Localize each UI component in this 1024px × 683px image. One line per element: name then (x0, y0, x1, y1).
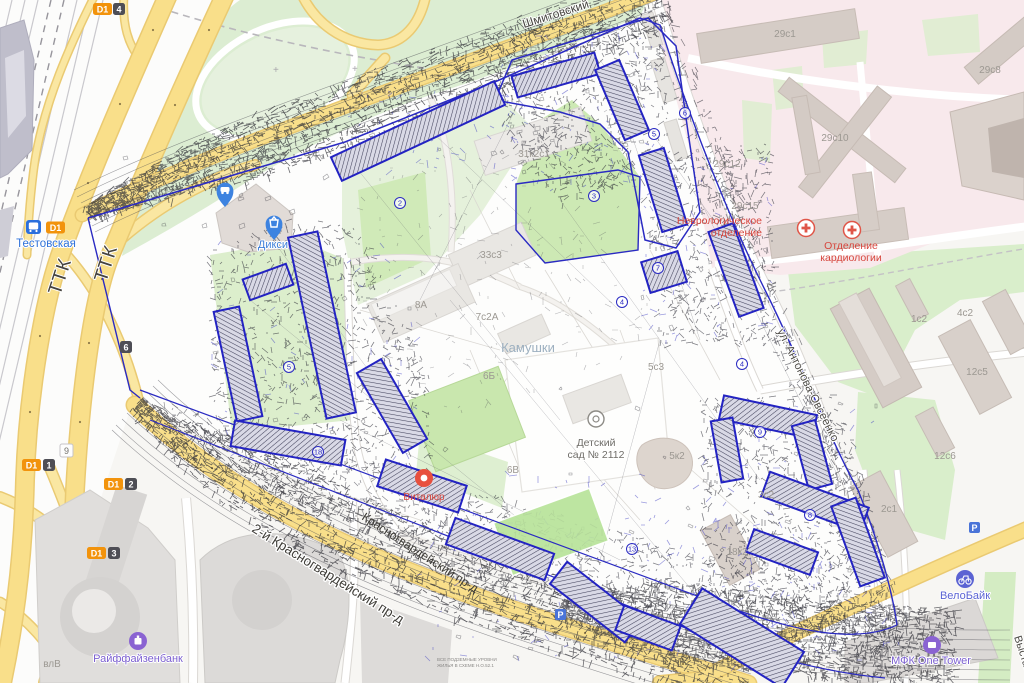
svg-text:4с2: 4с2 (957, 308, 974, 319)
svg-text:12с5: 12с5 (966, 367, 988, 378)
svg-text:4: 4 (116, 5, 121, 15)
svg-text:D1: D1 (50, 223, 62, 233)
svg-text:P: P (557, 610, 563, 620)
svg-text:D1: D1 (91, 549, 103, 559)
svg-text:Камушки: Камушки (501, 340, 555, 355)
svg-text:29с15: 29с15 (731, 201, 759, 212)
svg-text:5: 5 (287, 363, 291, 372)
svg-text:D1: D1 (108, 480, 120, 490)
svg-text:ЖИЛЬЯ В СХЕМЕ Н.О.52.1: ЖИЛЬЯ В СХЕМЕ Н.О.52.1 (437, 663, 494, 668)
svg-text:31к2с1: 31к2с1 (518, 149, 550, 160)
svg-text:2с1: 2с1 (881, 504, 898, 515)
svg-text:9: 9 (64, 446, 69, 456)
svg-text:33с3: 33с3 (480, 250, 502, 261)
svg-text:2: 2 (398, 199, 402, 208)
svg-text:отделение: отделение (711, 227, 762, 239)
svg-text:3с2: 3с2 (758, 490, 775, 501)
svg-text:6: 6 (683, 109, 687, 118)
svg-text:3: 3 (592, 192, 596, 201)
svg-text:7с2А: 7с2А (476, 312, 499, 323)
svg-text:P: P (971, 523, 977, 533)
svg-text:13: 13 (628, 545, 636, 554)
svg-text:Неврологическое: Неврологическое (677, 215, 762, 227)
svg-text:6Б: 6Б (483, 371, 496, 382)
svg-text:18: 18 (314, 448, 322, 457)
svg-text:3: 3 (111, 549, 116, 559)
svg-text:8: 8 (808, 511, 812, 520)
svg-text:D1: D1 (97, 5, 109, 15)
svg-text:9: 9 (758, 428, 762, 437)
svg-text:6В: 6В (507, 465, 520, 476)
svg-text:29с8: 29с8 (979, 65, 1001, 76)
svg-text:1: 1 (46, 461, 51, 471)
svg-text:Детский: Детский (577, 437, 616, 449)
svg-text:29с1: 29с1 (774, 29, 796, 40)
svg-text:Райффайзенбанк: Райффайзенбанк (93, 653, 183, 665)
svg-text:МФК One Tower: МФК One Tower (891, 655, 971, 667)
svg-text:8А: 8А (415, 300, 428, 311)
svg-text:Виталюр: Виталюр (403, 492, 445, 503)
svg-text:+: + (352, 64, 358, 75)
svg-text:29с12: 29с12 (713, 159, 741, 170)
svg-text:влВ: влВ (43, 659, 61, 670)
svg-text:6: 6 (123, 343, 128, 353)
svg-text:+: + (273, 65, 279, 76)
svg-text:Дикси: Дикси (258, 239, 288, 251)
svg-text:2: 2 (128, 480, 133, 490)
svg-text:5с3: 5с3 (648, 362, 665, 373)
svg-text:18к2: 18к2 (726, 547, 747, 558)
svg-text:Отделение: Отделение (824, 240, 878, 252)
svg-text:5к2: 5к2 (669, 451, 685, 462)
svg-text:29с10: 29с10 (821, 133, 849, 144)
svg-text:D1: D1 (26, 461, 38, 471)
svg-text:5: 5 (652, 130, 656, 139)
svg-text:ВСЕ ПОДЗЕМНЫЕ УРОВНИ: ВСЕ ПОДЗЕМНЫЕ УРОВНИ (437, 657, 497, 662)
svg-text:сад № 2112: сад № 2112 (568, 449, 625, 461)
svg-text:Тестовская: Тестовская (16, 238, 76, 250)
svg-text:кардиологии: кардиологии (820, 252, 882, 264)
svg-text:7: 7 (656, 264, 660, 273)
svg-text:ВелоБайк: ВелоБайк (940, 590, 990, 602)
svg-text:4: 4 (620, 298, 624, 307)
svg-text:12с6: 12с6 (934, 451, 956, 462)
svg-text:4: 4 (740, 360, 744, 369)
svg-text:1с2: 1с2 (911, 314, 928, 325)
